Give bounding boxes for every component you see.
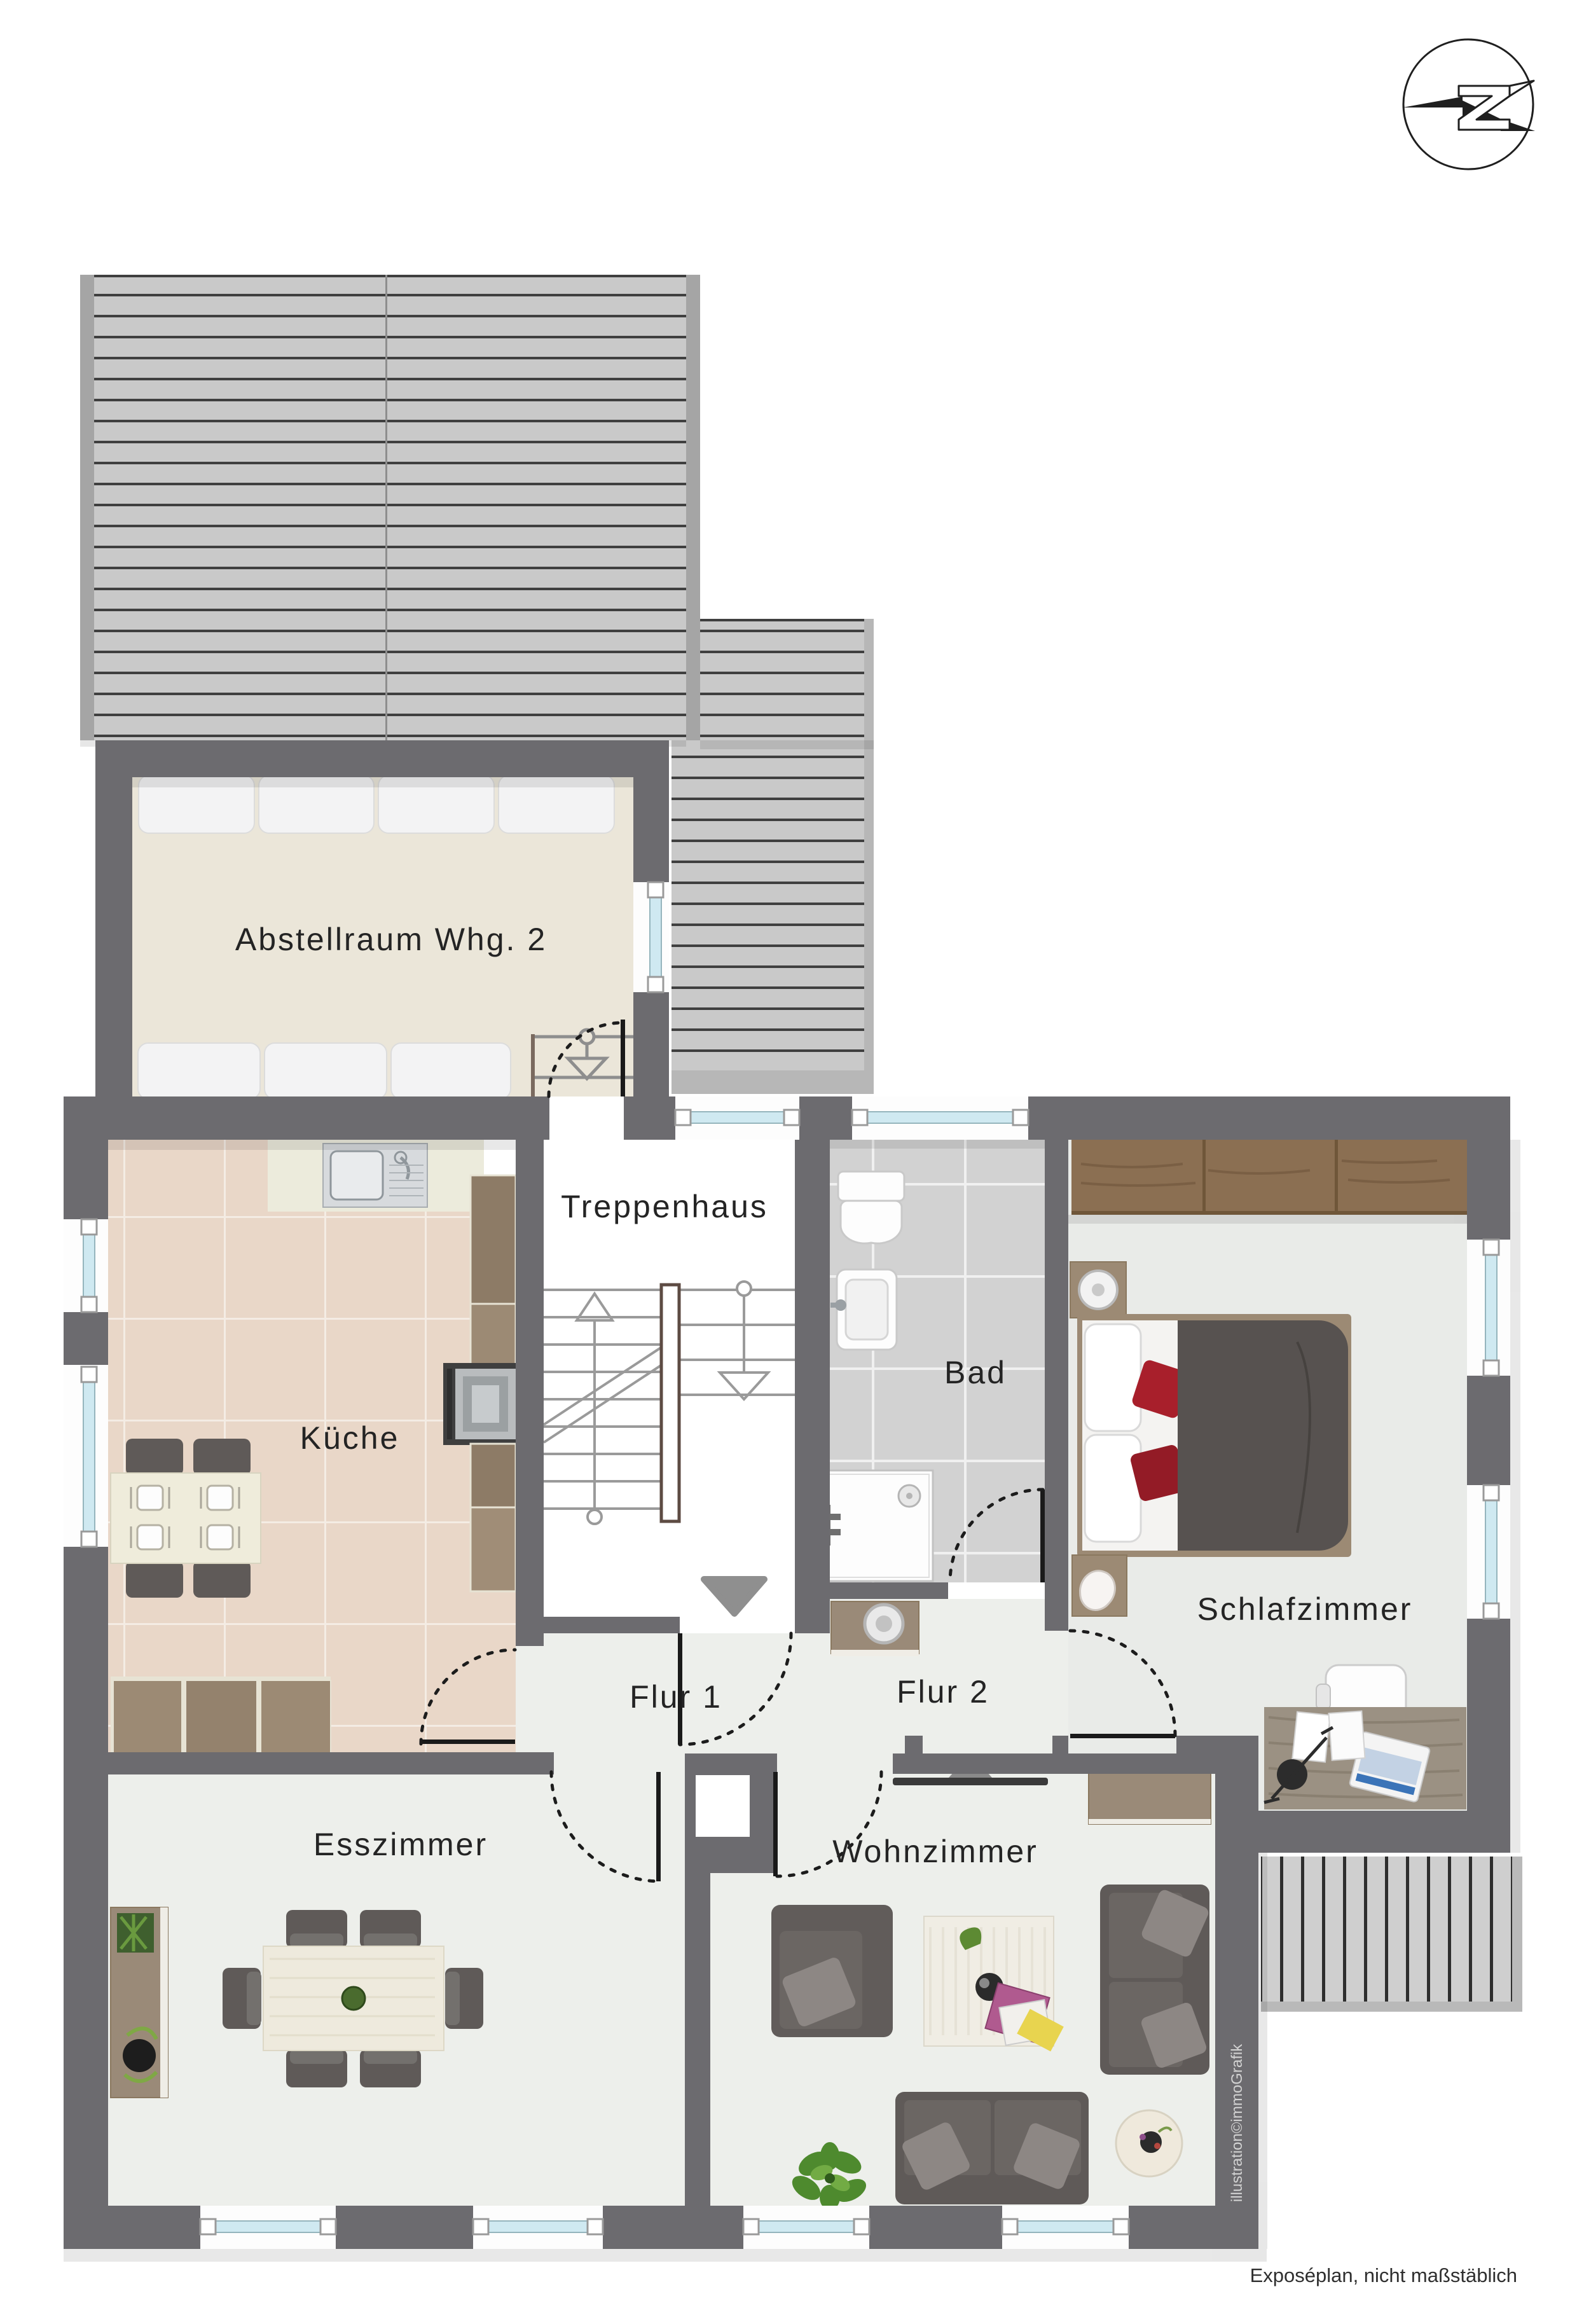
svg-text:Exposéplan, nicht maßstäblich: Exposéplan, nicht maßstäblich [1250,2264,1517,2286]
svg-text:Schlafzimmer: Schlafzimmer [1197,1591,1413,1627]
svg-text:Esszimmer: Esszimmer [313,1827,488,1862]
svg-text:Küche: Küche [300,1420,400,1456]
svg-text:Flur 2: Flur 2 [897,1674,989,1710]
svg-text:Wohnzimmer: Wohnzimmer [832,1834,1038,1869]
svg-text:Treppenhaus: Treppenhaus [561,1189,768,1224]
svg-text:Flur 1: Flur 1 [630,1679,722,1715]
svg-text:Abstellraum Whg. 2: Abstellraum Whg. 2 [235,922,547,957]
svg-text:Bad: Bad [944,1355,1007,1390]
svg-text:illustration©immoGrafik: illustration©immoGrafik [1229,2044,1246,2202]
